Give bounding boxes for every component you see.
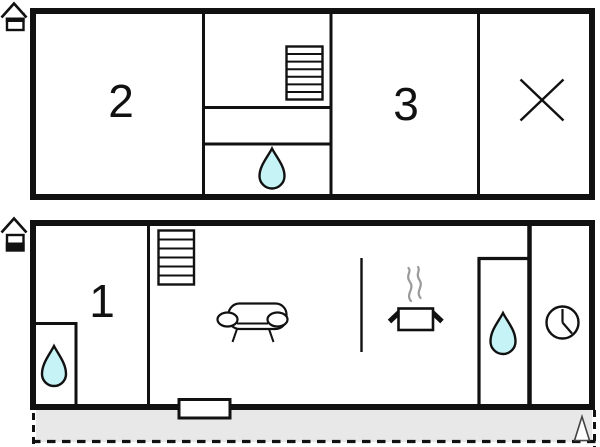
room-label-2: 2 xyxy=(108,75,134,127)
staircase-icon xyxy=(287,47,323,100)
clock-icon xyxy=(547,307,579,339)
pot-body xyxy=(399,309,434,331)
floor-plan-drawing: 2 3 xyxy=(0,0,600,447)
sofa-armrest xyxy=(218,313,238,327)
home-ground-level-marker xyxy=(6,243,25,252)
window-icon xyxy=(179,400,230,419)
home-roof xyxy=(2,219,27,233)
home-roof xyxy=(2,4,27,18)
room-label-1: 1 xyxy=(89,275,115,327)
home-ground-floor-icon xyxy=(2,219,27,252)
staircase-icon xyxy=(159,231,195,285)
sofa-armrest xyxy=(268,313,288,327)
room-label-3: 3 xyxy=(393,78,419,130)
home-upper-floor-icon xyxy=(2,4,27,31)
upper-floor-plan: 2 3 xyxy=(33,11,592,197)
ground-floor-outer-wall xyxy=(33,223,592,407)
terrace-area xyxy=(36,408,592,442)
ground-floor-plan: 1 xyxy=(32,223,598,447)
floor-plan-page: 2 3 xyxy=(0,0,600,447)
